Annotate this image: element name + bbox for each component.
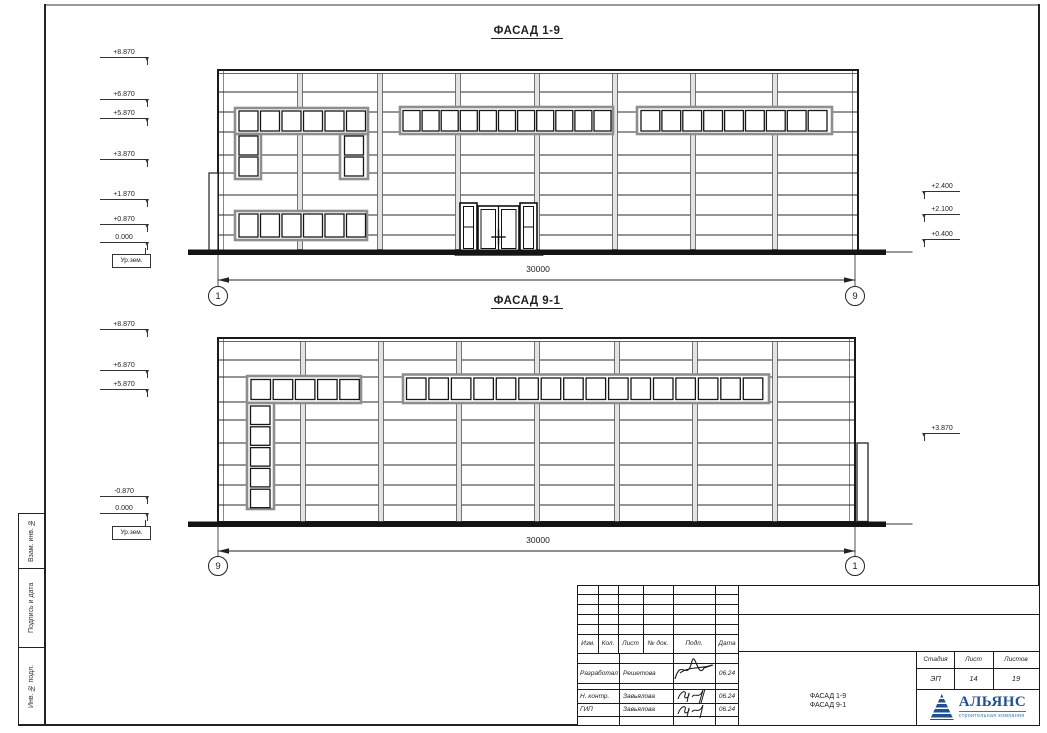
elevation-mark: +2.100 bbox=[924, 206, 960, 215]
elevation-mark: +2.400 bbox=[924, 183, 960, 192]
elevation-mark: +6.870 bbox=[100, 91, 148, 100]
doc-title-line1: ФАСАД 1-9 bbox=[739, 692, 917, 701]
ground-line bbox=[188, 522, 886, 528]
row-name: Завьялова bbox=[621, 703, 675, 716]
facade-1-9-title: ФАСАД 1-9 bbox=[427, 25, 627, 37]
elevation-mark: 0.000 bbox=[100, 234, 148, 243]
title-block: Изм. Кол. Лист № док. Подп. Дата Разрабо… bbox=[577, 585, 1040, 726]
row-date: 06.24 bbox=[715, 663, 739, 683]
elevation-mark: +1.870 bbox=[100, 191, 148, 200]
elevation-mark: +3.870 bbox=[924, 425, 960, 434]
row-name: Завьялова bbox=[621, 689, 675, 703]
pilaster bbox=[209, 173, 218, 252]
company-logo: АЛЬЯНС строительная компания bbox=[917, 690, 1039, 724]
sheet-label: Лист bbox=[954, 651, 993, 668]
pyramid-logo-icon bbox=[930, 694, 954, 720]
col-list: Лист bbox=[618, 634, 643, 653]
col-ndok: № док. bbox=[643, 634, 673, 653]
elevation-mark: -0.870 bbox=[100, 488, 148, 497]
row-role: Н. контр. bbox=[578, 689, 621, 703]
axis-bubble-1: 1 bbox=[845, 556, 865, 576]
doc-title-line2: ФАСАД 9-1 bbox=[739, 701, 917, 710]
axis-bubble-9: 9 bbox=[845, 286, 865, 306]
company-name: АЛЬЯНС bbox=[959, 695, 1026, 710]
elevation-mark: +8.870 bbox=[100, 49, 148, 58]
col-podp: Подп. bbox=[673, 634, 715, 653]
dimension-label: 30000 bbox=[508, 264, 568, 274]
elevation-mark: +3.870 bbox=[100, 151, 148, 160]
entrance-door bbox=[460, 203, 537, 252]
elevation-mark: 0.000 bbox=[100, 505, 148, 514]
row-date: 06.24 bbox=[715, 703, 739, 716]
facade-1-9-drawing bbox=[188, 70, 912, 286]
elevation-mark: +8.870 bbox=[100, 321, 148, 330]
facade-9-1-drawing bbox=[188, 338, 912, 556]
stage-label: Стадия bbox=[917, 651, 954, 668]
signature bbox=[670, 652, 716, 686]
elevation-mark: +0.400 bbox=[924, 231, 960, 240]
elevation-mark: +6.870 bbox=[100, 362, 148, 371]
col-kol: Кол. bbox=[598, 634, 618, 653]
row-role: Разработал bbox=[578, 663, 621, 683]
row-date: 06.24 bbox=[715, 689, 739, 703]
stage-value: ЭП bbox=[917, 668, 954, 689]
col-izm: Изм. bbox=[578, 634, 598, 653]
elevation-mark: +5.870 bbox=[100, 110, 148, 119]
dimension-label: 30000 bbox=[508, 535, 568, 545]
row-name: Решетова bbox=[621, 663, 675, 683]
row-role: ГИП bbox=[578, 703, 621, 716]
signature bbox=[674, 701, 714, 719]
ground-level-mark: Ур.зем. bbox=[112, 254, 151, 268]
drawing-sheet: Взам. инв. № Подпись и дата Инв. № подл. bbox=[0, 0, 1047, 733]
side-annex bbox=[857, 443, 868, 522]
elevation-mark: +5.870 bbox=[100, 381, 148, 390]
axis-bubble-9: 9 bbox=[208, 556, 228, 576]
sheets-total: 19 bbox=[993, 668, 1039, 689]
sheets-label: Листов bbox=[993, 651, 1039, 668]
sheet-number: 14 bbox=[954, 668, 993, 689]
col-data: Дата bbox=[715, 634, 739, 653]
ground-level-mark: Ур.зем. bbox=[112, 526, 151, 540]
company-subtitle: строительная компания bbox=[959, 711, 1026, 719]
axis-bubble-1: 1 bbox=[208, 286, 228, 306]
facade-9-1-title: ФАСАД 9-1 bbox=[427, 295, 627, 307]
elevation-mark: +0.870 bbox=[100, 216, 148, 225]
ground-line bbox=[188, 250, 886, 256]
doc-title: ФАСАД 1-9 ФАСАД 9-1 bbox=[739, 692, 917, 710]
